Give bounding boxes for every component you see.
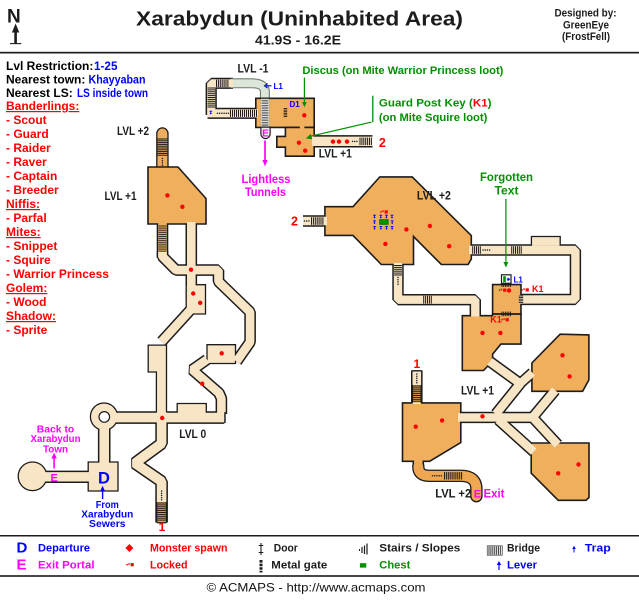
svg-text:Lightless: Lightless bbox=[242, 172, 291, 186]
svg-text:- Parfal: - Parfal bbox=[6, 211, 47, 225]
svg-text:Trap: Trap bbox=[585, 543, 611, 555]
svg-text:Departure: Departure bbox=[38, 543, 90, 555]
svg-text:Locked: Locked bbox=[150, 560, 188, 572]
svg-text:Door: Door bbox=[274, 543, 299, 555]
svg-text:Discus (on Mite Warrior Prince: Discus (on Mite Warrior Princess loot) bbox=[302, 65, 503, 77]
svg-text:- Guard: - Guard bbox=[6, 127, 49, 141]
svg-text:Text: Text bbox=[495, 184, 519, 198]
svg-text:Metal gate: Metal gate bbox=[271, 560, 327, 572]
svg-text:L1: L1 bbox=[514, 275, 524, 284]
svg-text:GreenEye: GreenEye bbox=[563, 20, 609, 32]
svg-text:LVL +1: LVL +1 bbox=[461, 386, 495, 398]
svg-text:LVL +2: LVL +2 bbox=[417, 191, 451, 203]
svg-text:E: E bbox=[51, 472, 58, 484]
svg-text:Guard Post Key (K1): Guard Post Key (K1) bbox=[379, 98, 492, 110]
svg-text:(FrostFell): (FrostFell) bbox=[562, 31, 610, 43]
svg-text:N: N bbox=[7, 7, 21, 28]
svg-text:Chest: Chest bbox=[379, 560, 410, 572]
svg-text:- Raver: - Raver bbox=[6, 155, 47, 169]
svg-text:- Breeder: - Breeder bbox=[6, 183, 59, 197]
svg-text:E: E bbox=[17, 557, 27, 574]
svg-text:2: 2 bbox=[379, 136, 386, 150]
svg-text:1: 1 bbox=[159, 520, 166, 534]
svg-text:- Sprite: - Sprite bbox=[6, 323, 48, 337]
svg-text:Golem:: Golem: bbox=[6, 281, 47, 295]
svg-text:Bridge: Bridge bbox=[507, 543, 540, 555]
svg-text:Stairs / Slopes: Stairs / Slopes bbox=[379, 543, 460, 555]
svg-text:Monster spawn: Monster spawn bbox=[150, 543, 228, 555]
svg-text:2: 2 bbox=[291, 215, 298, 229]
svg-text:LVL +1: LVL +1 bbox=[105, 191, 138, 203]
svg-text:E: E bbox=[262, 129, 269, 140]
svg-text:Shadow:: Shadow: bbox=[6, 309, 56, 323]
svg-text:Town: Town bbox=[43, 444, 68, 456]
svg-text:LVL 0: LVL 0 bbox=[179, 429, 206, 441]
svg-text:Designed by:: Designed by: bbox=[555, 8, 617, 20]
svg-text:41.9S - 16.2E: 41.9S - 16.2E bbox=[255, 33, 341, 48]
svg-text:D1: D1 bbox=[290, 100, 301, 109]
svg-text:D: D bbox=[17, 540, 28, 557]
svg-text:Tunnels: Tunnels bbox=[245, 185, 286, 199]
svg-text:L1: L1 bbox=[274, 82, 284, 91]
svg-text:Exit: Exit bbox=[484, 487, 505, 501]
svg-text:LVL -1: LVL -1 bbox=[238, 64, 270, 76]
svg-text:LVL +1: LVL +1 bbox=[319, 149, 353, 161]
svg-text:LVL +2: LVL +2 bbox=[435, 488, 471, 500]
svg-text:E: E bbox=[474, 489, 481, 501]
svg-text:Lvl Restriction:1-25: Lvl Restriction:1-25 bbox=[6, 59, 118, 73]
svg-text:Exit Portal: Exit Portal bbox=[38, 560, 95, 572]
svg-text:Banderlings:: Banderlings: bbox=[6, 99, 79, 113]
svg-text:Nearest LS:LS inside town: Nearest LS:LS inside town bbox=[6, 86, 148, 100]
svg-text:Forgotten: Forgotten bbox=[480, 170, 533, 184]
svg-text:- Scout: - Scout bbox=[6, 113, 47, 127]
svg-text:Nearest town:Khayyaban: Nearest town:Khayyaban bbox=[6, 73, 146, 87]
svg-text:- Warrior Princess: - Warrior Princess bbox=[6, 267, 109, 281]
svg-text:Lever: Lever bbox=[507, 560, 538, 572]
svg-text:- Raider: - Raider bbox=[6, 141, 51, 155]
svg-text:K1: K1 bbox=[490, 315, 502, 325]
svg-text:© ACMAPS - http://www.acmaps.c: © ACMAPS - http://www.acmaps.com bbox=[207, 581, 426, 595]
svg-text:Mites:: Mites: bbox=[6, 225, 41, 239]
svg-text:- Captain: - Captain bbox=[6, 169, 57, 183]
svg-text:Sewers: Sewers bbox=[89, 518, 126, 530]
svg-text:D: D bbox=[98, 470, 110, 488]
svg-text:LVL +2: LVL +2 bbox=[117, 126, 149, 138]
svg-text:K1: K1 bbox=[532, 284, 544, 294]
svg-text:- Wood: - Wood bbox=[6, 295, 46, 309]
svg-text:Niffis:: Niffis: bbox=[6, 197, 40, 211]
svg-text:1: 1 bbox=[413, 357, 420, 371]
svg-text:Xarabydun (Uninhabited Area): Xarabydun (Uninhabited Area) bbox=[136, 8, 463, 31]
svg-text:- Squire: - Squire bbox=[6, 253, 51, 267]
svg-text:- Snippet: - Snippet bbox=[6, 239, 57, 253]
svg-text:(on Mite Squire loot): (on Mite Squire loot) bbox=[379, 112, 488, 124]
